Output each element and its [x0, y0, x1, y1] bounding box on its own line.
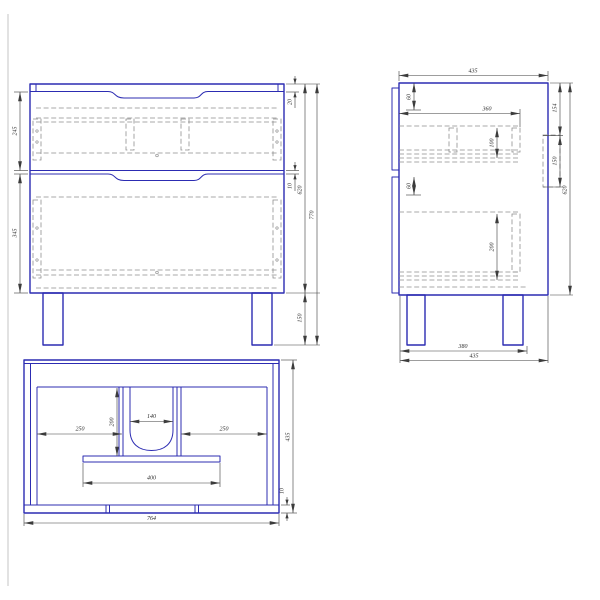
plan-bracket	[83, 456, 220, 462]
dim-plan-front-lip: 10	[280, 488, 286, 494]
dim-plan-bracket-width: 400	[147, 475, 156, 482]
dim-plan-left-bay: 250	[76, 427, 85, 433]
side-drawer-front-bottom	[392, 177, 399, 293]
side-drawer-front-top	[392, 88, 399, 170]
dim-side-rail-length: 360	[482, 107, 492, 113]
side-view-hidden-lines	[399, 126, 560, 287]
dim-front-top-panel: 20	[288, 99, 294, 105]
dim-side-lower-rail-height: 200	[490, 243, 496, 252]
dim-front-gap: 10	[288, 183, 294, 189]
dim-side-back-top: 154	[552, 104, 559, 113]
dim-side-leg-span: 380	[458, 344, 468, 350]
dim-front-total-height: 770	[310, 211, 316, 220]
dim-plan-right-bay: 250	[220, 427, 229, 433]
side-view: 435 60 360 100 60 200 154	[392, 68, 573, 364]
plan-view-outline	[24, 360, 279, 513]
front-view-hidden-lines	[33, 108, 281, 288]
plan-view: 250 250 200 140 400 764 435	[24, 360, 297, 526]
drawing-sheet: 245 345 20 10 620	[0, 0, 600, 600]
dim-side-offset-mid: 60	[407, 183, 413, 189]
dim-plan-bay-depth: 200	[110, 418, 116, 427]
dim-plan-overall-width: 764	[147, 515, 156, 522]
front-view-outline	[30, 84, 284, 345]
dim-front-body-height: 620	[298, 186, 304, 195]
dim-front-drawer-bottom: 345	[12, 229, 19, 239]
dim-side-depth: 435	[469, 68, 478, 75]
plan-view-dimensions: 250 250 200 140 400 764 435	[24, 360, 297, 526]
cabinet-drawing: 245 345 20 10 620	[0, 0, 600, 600]
dim-plan-overall-depth: 435	[285, 433, 292, 442]
front-left-leg	[43, 293, 63, 345]
dim-side-back-mid: 150	[553, 157, 559, 166]
dim-plan-cutout-width: 140	[147, 413, 156, 420]
side-front-leg	[407, 295, 425, 345]
dim-front-drawer-top: 245	[12, 127, 19, 136]
dim-side-depth-total: 435	[470, 353, 479, 360]
front-view-dimensions: 245 345 20 10 620	[12, 76, 321, 345]
dim-side-rail-height: 100	[490, 139, 496, 148]
dim-side-offset-top: 60	[407, 94, 413, 100]
side-back-leg	[503, 295, 523, 345]
dim-front-leg-height: 150	[298, 314, 304, 323]
dim-side-body-height: 620	[563, 186, 569, 195]
side-view-outline	[392, 83, 548, 345]
front-view: 245 345 20 10 620	[12, 76, 321, 345]
front-right-leg	[252, 293, 272, 345]
